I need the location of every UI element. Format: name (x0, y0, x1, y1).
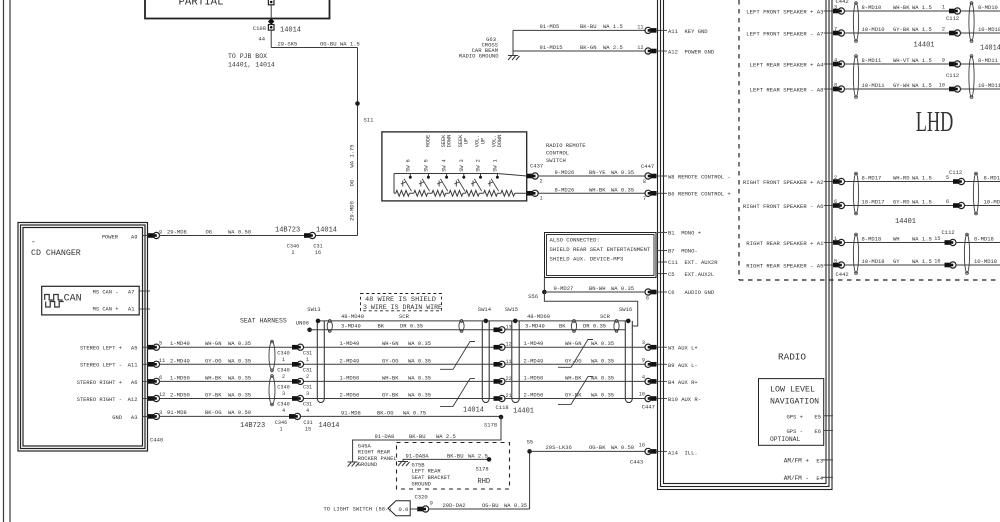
svg-text:8: 8 (643, 179, 646, 185)
svg-text:C447: C447 (641, 163, 654, 170)
svg-text:8-MD11: 8-MD11 (978, 57, 999, 64)
svg-text:9-MD27: 9-MD27 (554, 285, 574, 292)
svg-text:BK-OG: BK-OG (377, 409, 394, 416)
svg-text:WH-GN: WH-GN (205, 340, 222, 347)
svg-text:3: 3 (642, 340, 645, 346)
svg-text:1-MD50: 1-MD50 (170, 374, 190, 381)
svg-text:7: 7 (643, 196, 646, 202)
svg-text:E6: E6 (814, 428, 821, 435)
svg-text:10-MD11: 10-MD11 (862, 82, 886, 89)
svg-text:3-MD49: 3-MD49 (341, 323, 361, 330)
svg-text:91-DA8: 91-DA8 (375, 433, 395, 440)
svg-text:6: 6 (834, 199, 837, 205)
svg-text:UN06: UN06 (296, 320, 309, 327)
svg-text:10: 10 (939, 83, 945, 89)
svg-text:2: 2 (540, 178, 543, 184)
svg-text:8-MD18: 8-MD18 (862, 236, 882, 243)
svg-text:16: 16 (639, 443, 645, 449)
svg-text:WA 2.5: WA 2.5 (436, 433, 456, 440)
svg-text:WA 0.35: WA 0.35 (228, 340, 251, 347)
svg-text:STEREO RIGHT +: STEREO RIGHT + (77, 380, 122, 386)
svg-text:15: 15 (934, 236, 940, 242)
svg-text:LHD: LHD (916, 107, 954, 138)
svg-text:10-MD10: 10-MD10 (862, 26, 885, 33)
svg-text:WA 1.5: WA 1.5 (912, 26, 932, 33)
svg-text:91-MD5: 91-MD5 (540, 23, 560, 30)
svg-text:DOWN: DOWN (446, 135, 452, 147)
svg-text:MS CAN +: MS CAN + (93, 306, 119, 312)
svg-text:WH-BK: WH-BK (589, 186, 606, 193)
svg-text:91-DA8A: 91-DA8A (406, 453, 430, 460)
svg-text:A9: A9 (131, 234, 138, 241)
svg-text:10: 10 (639, 392, 645, 398)
svg-text:NAVIGATION: NAVIGATION (770, 398, 819, 407)
svg-text:B1 MONO +: B1 MONO + (668, 230, 701, 237)
svg-text:RIGHT FRONT SPEAKER - A6: RIGHT FRONT SPEAKER - A6 (743, 203, 824, 210)
svg-text:RIGHT FRONT SPEAKER + A2: RIGHT FRONT SPEAKER + A2 (743, 179, 824, 186)
svg-text:4: 4 (642, 374, 645, 380)
svg-text:14B723: 14B723 (275, 227, 300, 235)
svg-text:DOWN: DOWN (497, 135, 503, 147)
svg-text:C437: C437 (530, 162, 543, 169)
svg-text:C440: C440 (150, 437, 163, 444)
svg-text:15: 15 (305, 426, 311, 432)
svg-text:RIGHT REAR SPEAKER - A5: RIGHT REAR SPEAKER - A5 (746, 262, 823, 269)
svg-text:WA 0.35: WA 0.35 (408, 357, 431, 364)
svg-text:E5: E5 (814, 413, 821, 420)
svg-text:W8 REMOTE CONTROL -: W8 REMOTE CONTROL - (668, 173, 731, 180)
svg-text:ROCKER PANEL: ROCKER PANEL (358, 456, 397, 462)
svg-text:RIGHT REAR SPEAKER + A1: RIGHT REAR SPEAKER + A1 (746, 240, 824, 247)
svg-text:DR 0.35: DR 0.35 (583, 323, 606, 330)
svg-text:BK-BU: BK-BU (580, 23, 597, 30)
svg-text:C112: C112 (946, 72, 959, 79)
svg-text:91-MD8: 91-MD8 (167, 409, 187, 416)
svg-text:WH-GN: WH-GN (565, 340, 582, 347)
svg-text:S11: S11 (364, 117, 375, 124)
svg-text:B6 REMOTE CONTROL +: B6 REMOTE CONTROL + (668, 191, 731, 198)
svg-text:1-MD49: 1-MD49 (170, 340, 190, 347)
svg-text:10-MD17: 10-MD17 (984, 198, 1000, 205)
svg-text:10-MD18: 10-MD18 (862, 258, 885, 265)
svg-text:A1: A1 (128, 305, 135, 312)
svg-text:WA 0.35: WA 0.35 (591, 340, 614, 347)
svg-text:3: 3 (306, 391, 309, 397)
svg-text:C112: C112 (942, 229, 955, 236)
svg-text:WA 0.35: WA 0.35 (228, 374, 251, 381)
svg-text:C31: C31 (313, 244, 322, 250)
svg-text:GND: GND (112, 415, 122, 421)
svg-text:C6 AUDIO GND: C6 AUDIO GND (668, 289, 715, 296)
svg-text:2-MD50: 2-MD50 (170, 392, 190, 399)
svg-text:DR 0.35: DR 0.35 (400, 323, 423, 330)
svg-text:WA 2.5: WA 2.5 (468, 453, 488, 460)
svg-text:A3: A3 (131, 414, 138, 421)
svg-text:9: 9 (159, 230, 162, 236)
svg-text:14401: 14401 (895, 218, 916, 226)
svg-text:WA 0.35: WA 0.35 (591, 392, 614, 399)
svg-text:44: 44 (258, 36, 265, 43)
svg-text:29-SK5: 29-SK5 (278, 41, 298, 48)
svg-text:POWER: POWER (102, 235, 119, 241)
svg-text:3: 3 (159, 410, 162, 416)
svg-text:C442: C442 (836, 271, 849, 278)
svg-text:WA 0.35: WA 0.35 (228, 357, 251, 364)
svg-text:SW 3: SW 3 (459, 159, 465, 171)
svg-text:48 WIRE IS SHIELD: 48 WIRE IS SHIELD (365, 296, 436, 303)
svg-text:WH: WH (893, 236, 900, 243)
svg-text:WA 1.5: WA 1.5 (912, 82, 932, 89)
svg-text:5: 5 (159, 341, 162, 347)
svg-text:10-MD11: 10-MD11 (978, 82, 1000, 89)
svg-text:A12 POWER GND: A12 POWER GND (668, 49, 715, 56)
svg-text:SW15: SW15 (505, 306, 518, 313)
svg-text:STEREO LEFT -: STEREO LEFT - (80, 363, 122, 369)
svg-text:BK-OG: BK-OG (205, 409, 222, 416)
svg-text:1: 1 (942, 5, 945, 11)
svg-text:12: 12 (506, 342, 512, 348)
svg-text:WH-RD: WH-RD (893, 175, 910, 182)
svg-text:48-MD49: 48-MD49 (341, 313, 364, 320)
svg-text:C118: C118 (496, 404, 509, 411)
svg-text:BK-GN: BK-GN (580, 44, 597, 51)
svg-text:A11: A11 (128, 362, 139, 369)
svg-text:-: - (31, 238, 36, 247)
svg-text:29S-LK36: 29S-LK36 (546, 444, 572, 451)
svg-text:ALSO CONNECTED:: ALSO CONNECTED: (550, 237, 600, 244)
svg-text:STEREO RIGHT -: STEREO RIGHT - (77, 397, 122, 403)
svg-text:4: 4 (282, 408, 285, 414)
svg-text:RIGHT REAR: RIGHT REAR (358, 450, 391, 456)
svg-text:WA 1.5: WA 1.5 (912, 4, 932, 11)
svg-text:91-MD8: 91-MD8 (341, 409, 361, 416)
svg-text:SWITCH: SWITCH (546, 157, 566, 164)
svg-text:CONTROL: CONTROL (546, 150, 569, 157)
svg-text:OG: OG (349, 180, 356, 187)
svg-text:10-MD17: 10-MD17 (862, 199, 885, 206)
svg-text:21: 21 (506, 393, 512, 399)
svg-text:A12: A12 (128, 396, 138, 403)
svg-text:E3: E3 (816, 457, 823, 464)
svg-text:G75B: G75B (412, 462, 426, 468)
svg-text:LEFT REAR: LEFT REAR (412, 469, 442, 475)
svg-text:OG-BU: OG-BU (320, 41, 337, 48)
svg-text:2-MD49: 2-MD49 (524, 357, 544, 364)
svg-text:2-MD49: 2-MD49 (170, 357, 190, 364)
svg-text:SHIELD AUX. DEVICE-MP3: SHIELD AUX. DEVICE-MP3 (550, 255, 624, 262)
svg-text:WA 1.5: WA 1.5 (912, 258, 932, 265)
svg-text:C31: C31 (303, 402, 312, 408)
svg-text:GPS -: GPS - (786, 428, 803, 435)
svg-text:1: 1 (279, 426, 282, 432)
svg-text:A14 ILL.: A14 ILL. (668, 449, 698, 456)
svg-text:G45A: G45A (358, 444, 372, 450)
svg-text:10-MD18: 10-MD18 (974, 258, 997, 265)
svg-text:C112: C112 (946, 15, 959, 22)
svg-text:CD CHANGER: CD CHANGER (31, 249, 81, 258)
svg-text:WA 2.5: WA 2.5 (603, 44, 623, 51)
svg-text:WA 1.5: WA 1.5 (912, 236, 932, 243)
svg-text:8-MD10: 8-MD10 (978, 4, 998, 11)
svg-text:14401: 14401 (914, 42, 935, 50)
svg-text:LOW LEVEL: LOW LEVEL (770, 386, 815, 395)
svg-text:5: 5 (946, 175, 949, 181)
svg-text:3 WIRE IS DRAIN WIRE: 3 WIRE IS DRAIN WIRE (363, 304, 442, 311)
svg-text:GROUND: GROUND (358, 462, 377, 468)
svg-text:WA 0.35: WA 0.35 (408, 340, 431, 347)
svg-text:WA 0.35: WA 0.35 (611, 186, 634, 193)
svg-text:14014: 14014 (463, 407, 484, 415)
svg-text:C11 EXT. AUX2R: C11 EXT. AUX2R (668, 259, 718, 266)
svg-text:0.0: 0.0 (399, 506, 409, 513)
svg-text:14014: 14014 (316, 227, 337, 235)
svg-text:13: 13 (506, 324, 512, 330)
svg-text:B9 AUX L-: B9 AUX L- (668, 362, 698, 369)
svg-text:WA 0.75: WA 0.75 (403, 409, 426, 416)
svg-text:12: 12 (637, 45, 643, 51)
svg-text:WA 1.5: WA 1.5 (912, 57, 932, 64)
svg-text:C340: C340 (277, 385, 289, 391)
svg-text:SEAT BRACKET: SEAT BRACKET (412, 475, 452, 481)
svg-text:WA 0.35: WA 0.35 (408, 374, 431, 381)
svg-text:14401: 14401 (513, 408, 534, 416)
svg-text:RADIO GROUND: RADIO GROUND (459, 53, 499, 60)
svg-text:S56: S56 (528, 293, 538, 300)
svg-text:8-MD17: 8-MD17 (862, 175, 882, 182)
svg-text:WA 0.50: WA 0.50 (611, 444, 634, 451)
svg-text:WA 1.5: WA 1.5 (912, 175, 932, 182)
svg-text:GY-OG: GY-OG (205, 357, 222, 364)
svg-text:6: 6 (646, 296, 649, 302)
svg-text:C340: C340 (277, 350, 289, 356)
svg-text:SW 4: SW 4 (442, 159, 448, 171)
svg-text:BK-BU: BK-BU (409, 433, 426, 440)
svg-text:PARTIAL: PARTIAL (179, 0, 224, 9)
svg-text:B7 MONO-: B7 MONO- (668, 248, 698, 255)
svg-text:LEFT FRONT SPEAKER - A7: LEFT FRONT SPEAKER - A7 (746, 30, 823, 37)
svg-text:1: 1 (306, 357, 309, 363)
svg-text:SW 1: SW 1 (492, 159, 498, 171)
svg-text:2: 2 (306, 374, 309, 380)
svg-text:WH-BK: WH-BK (893, 4, 910, 11)
svg-text:11: 11 (506, 359, 512, 365)
svg-text:BN-YE: BN-YE (589, 169, 606, 176)
svg-text:6: 6 (159, 375, 162, 381)
svg-text:B4 AUX R+: B4 AUX R+ (668, 379, 698, 386)
svg-text:3-MD49: 3-MD49 (525, 323, 545, 330)
svg-text:BK: BK (559, 323, 566, 330)
svg-text:AM/FM -: AM/FM - (784, 475, 809, 482)
svg-text:BK-BU: BK-BU (447, 453, 464, 460)
svg-text:1-MD50: 1-MD50 (340, 374, 360, 381)
svg-text:WA 0.35: WA 0.35 (408, 392, 431, 399)
svg-text:B10 AUX R-: B10 AUX R- (668, 396, 701, 403)
svg-text:A6: A6 (131, 379, 138, 386)
svg-text:C112: C112 (949, 169, 962, 176)
svg-text:GY-WH: GY-WH (893, 82, 910, 89)
svg-text:GROUND: GROUND (412, 482, 431, 488)
svg-text:2: 2 (942, 27, 945, 33)
svg-text:C442: C442 (836, 0, 849, 5)
svg-text:12: 12 (159, 392, 165, 398)
svg-text:9-MD26: 9-MD26 (555, 169, 575, 176)
svg-text:RHD: RHD (478, 478, 491, 486)
svg-text:C320: C320 (415, 494, 428, 501)
svg-text:LEFT FRONT SPEAKER + A3: LEFT FRONT SPEAKER + A3 (746, 8, 823, 15)
svg-text:TO PJB BOX: TO PJB BOX (228, 53, 267, 60)
svg-text:C5 EXT.AUX2L: C5 EXT.AUX2L (668, 271, 714, 278)
svg-text:WA 0.50: WA 0.50 (228, 228, 251, 235)
svg-text:C447: C447 (642, 404, 655, 411)
svg-text:GY-BK: GY-BK (565, 392, 582, 399)
svg-text:1: 1 (540, 196, 543, 202)
svg-text:2: 2 (291, 250, 294, 256)
svg-text:WH-BK: WH-BK (565, 374, 582, 381)
svg-text:UP: UP (480, 138, 486, 144)
svg-text:1-MD49: 1-MD49 (524, 340, 544, 347)
svg-text:SW16: SW16 (619, 306, 632, 313)
svg-text:STEREO LEFT +: STEREO LEFT + (80, 346, 122, 352)
svg-text:2-MD50: 2-MD50 (340, 392, 360, 399)
svg-text:16: 16 (315, 250, 321, 256)
svg-text:5: 5 (834, 259, 837, 265)
svg-text:8: 8 (834, 83, 837, 89)
svg-text:OG: OG (206, 228, 213, 235)
svg-text:SCR: SCR (399, 313, 410, 320)
svg-text:1: 1 (282, 357, 285, 363)
svg-text:29D-DA2: 29D-DA2 (443, 502, 466, 509)
svg-text:GY-OG: GY-OG (382, 357, 399, 364)
svg-text:S178: S178 (476, 466, 489, 473)
svg-text:AM/FM +: AM/FM + (784, 457, 810, 464)
svg-text:91-MD15: 91-MD15 (540, 44, 563, 51)
svg-text:SCR: SCR (600, 313, 611, 320)
svg-text:WA 1.5: WA 1.5 (603, 23, 623, 30)
svg-text:7: 7 (834, 27, 837, 33)
svg-text:RADIO: RADIO (778, 353, 806, 363)
svg-text:WA 1.75: WA 1.75 (349, 144, 356, 167)
svg-text:MS CAN -: MS CAN - (93, 289, 119, 295)
svg-text:8-MD26: 8-MD26 (555, 186, 575, 193)
svg-text:C31: C31 (303, 385, 312, 391)
svg-text:C346: C346 (275, 420, 287, 426)
svg-text:WA 1.5: WA 1.5 (340, 41, 360, 48)
svg-text:14401, 14014: 14401, 14014 (228, 62, 275, 69)
svg-text:6: 6 (946, 199, 949, 205)
svg-text:C346: C346 (287, 244, 299, 250)
svg-text:WH-BK: WH-BK (205, 374, 222, 381)
svg-text:SW 2: SW 2 (476, 159, 482, 171)
svg-text:C443: C443 (630, 459, 643, 466)
svg-text:2-MD50: 2-MD50 (524, 392, 544, 399)
svg-text:GY-BK: GY-BK (382, 392, 399, 399)
svg-text:BK: BK (378, 323, 385, 330)
svg-text:BN-WH: BN-WH (589, 285, 606, 292)
svg-text:9: 9 (430, 501, 433, 507)
svg-text:MODE: MODE (425, 135, 431, 147)
svg-text:WA 0.35: WA 0.35 (591, 357, 614, 364)
svg-text:C340: C340 (277, 402, 289, 408)
svg-text:A5: A5 (131, 345, 138, 352)
svg-text:LEFT REAR SPEAKER + A4: LEFT REAR SPEAKER + A4 (750, 61, 824, 68)
svg-text:29-MD8: 29-MD8 (167, 228, 187, 235)
svg-text:WA 0.35: WA 0.35 (611, 169, 634, 176)
svg-text:WH-VT: WH-VT (893, 57, 910, 64)
svg-text:1-MD50: 1-MD50 (524, 374, 544, 381)
svg-text:C31: C31 (303, 350, 312, 356)
svg-text:8-MD17: 8-MD17 (984, 174, 1000, 181)
svg-text:WA 1.5: WA 1.5 (912, 199, 932, 206)
svg-text:WA 0.35: WA 0.35 (504, 502, 527, 509)
svg-text:A7: A7 (128, 288, 135, 295)
svg-text:8-MD11: 8-MD11 (862, 57, 883, 64)
svg-text:SHIELD REAR SEAT ENTERTAINMENT: SHIELD REAR SEAT ENTERTAINMENT (550, 246, 651, 253)
svg-text:3: 3 (282, 391, 285, 397)
svg-text:WA 0.50: WA 0.50 (228, 409, 251, 416)
svg-text:WH-BK: WH-BK (382, 374, 399, 381)
svg-text:22: 22 (506, 376, 512, 382)
svg-text:16: 16 (934, 259, 940, 265)
svg-text:C340: C340 (277, 368, 289, 374)
svg-text:E4: E4 (816, 475, 823, 482)
svg-text:UP: UP (464, 138, 470, 144)
svg-text:SW 6: SW 6 (405, 159, 411, 171)
svg-text:9: 9 (642, 357, 645, 363)
svg-text:1-MD49: 1-MD49 (340, 340, 360, 347)
svg-text:48-MD69: 48-MD69 (527, 313, 550, 320)
svg-text:8-MD18: 8-MD18 (974, 235, 994, 242)
svg-text:OPTIONAL: OPTIONAL (770, 436, 800, 443)
svg-text:SW14: SW14 (478, 306, 492, 313)
svg-text:9: 9 (942, 58, 945, 64)
svg-text:14014: 14014 (980, 45, 1000, 53)
svg-text:TO LIGHT SWITCH (58-): TO LIGHT SWITCH (58-) (324, 506, 392, 512)
svg-text:14B723: 14B723 (240, 422, 265, 430)
svg-text:SW 5: SW 5 (423, 159, 429, 171)
svg-text:10-MD10: 10-MD10 (978, 26, 1000, 33)
svg-text:11: 11 (159, 358, 165, 364)
svg-text:SW13: SW13 (307, 306, 320, 313)
svg-text:GY: GY (893, 258, 900, 265)
svg-text:C31: C31 (303, 368, 312, 374)
svg-text:S178: S178 (484, 422, 497, 429)
svg-text:WH-GN: WH-GN (382, 340, 399, 347)
svg-text:A11 KEY GND: A11 KEY GND (668, 28, 708, 35)
svg-text:SEAT HARNESS: SEAT HARNESS (240, 318, 287, 325)
svg-text:C108: C108 (253, 25, 266, 32)
svg-text:WA 0.35: WA 0.35 (611, 285, 634, 292)
svg-text:OG-BK: OG-BK (589, 444, 606, 451)
svg-text:LEFT REAR SPEAKER - A8: LEFT REAR SPEAKER - A8 (750, 86, 824, 93)
svg-text:1: 1 (834, 236, 837, 242)
svg-text:2: 2 (282, 374, 285, 380)
svg-text:WA 0.35: WA 0.35 (591, 374, 614, 381)
svg-text:2-MD49: 2-MD49 (340, 357, 360, 364)
svg-text:14014: 14014 (280, 27, 301, 35)
svg-text:14014: 14014 (319, 422, 340, 430)
svg-text:4: 4 (306, 408, 309, 414)
svg-text:GPS +: GPS + (786, 413, 803, 420)
svg-text:RADIO REMOTE: RADIO REMOTE (546, 142, 586, 149)
svg-text:CAN: CAN (64, 294, 82, 305)
svg-text:S5: S5 (527, 439, 534, 446)
svg-text:C31: C31 (303, 420, 312, 426)
svg-text:OG-BU: OG-BU (482, 502, 499, 509)
svg-text:3: 3 (834, 5, 837, 11)
svg-text:GY-RD: GY-RD (893, 199, 910, 206)
svg-text:4: 4 (834, 58, 837, 64)
svg-text:W3 AUX L+: W3 AUX L+ (668, 345, 698, 352)
